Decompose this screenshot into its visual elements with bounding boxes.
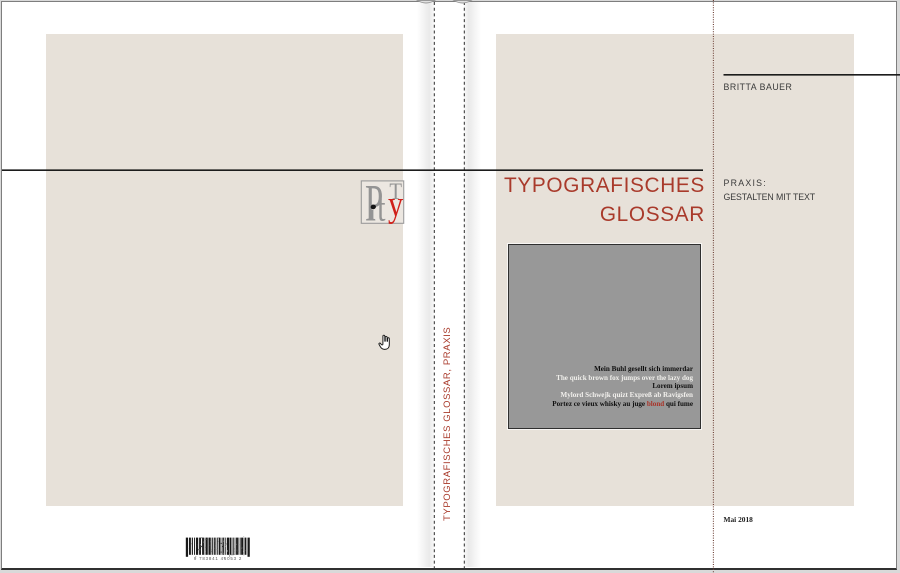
svg-text:y: y bbox=[388, 184, 403, 224]
svg-text:t: t bbox=[377, 188, 386, 229]
svg-text:9 783841 46053 2: 9 783841 46053 2 bbox=[194, 556, 242, 561]
svg-text:i: i bbox=[369, 201, 375, 226]
